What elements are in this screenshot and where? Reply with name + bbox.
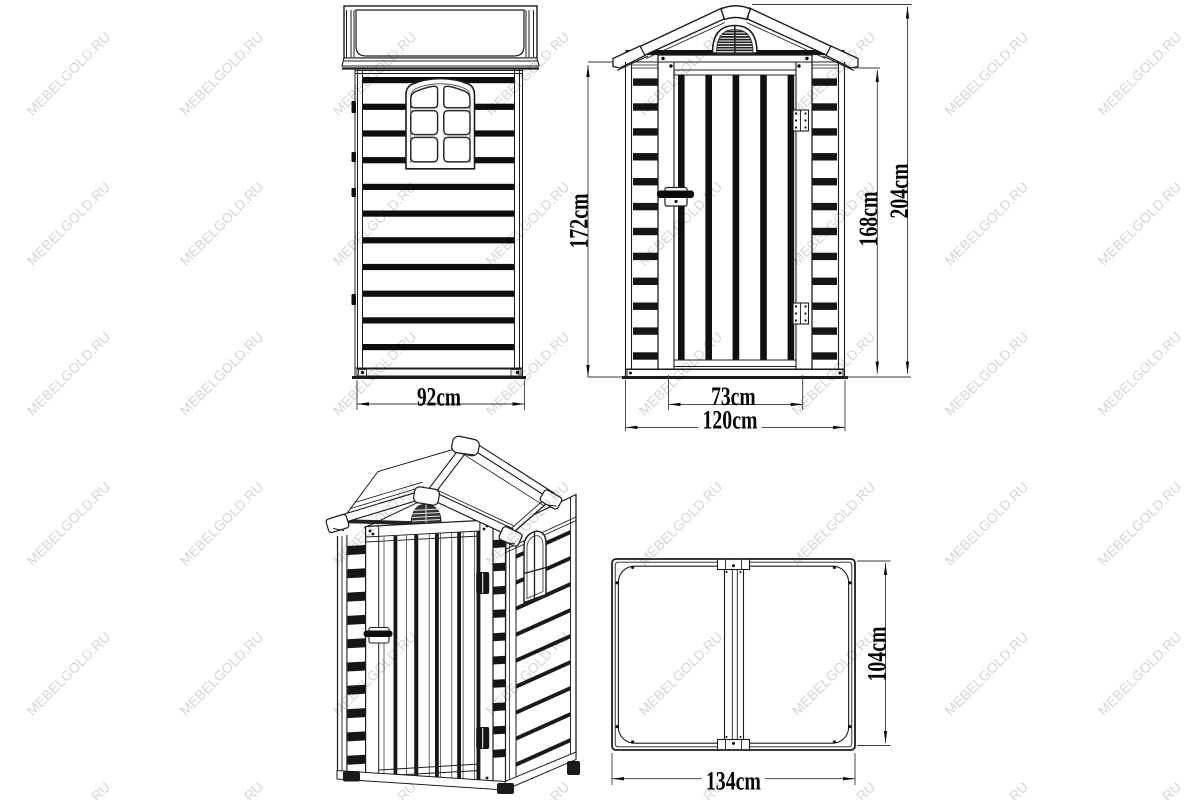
svg-text:MEBELGOLD.RU: MEBELGOLD.RU [788, 778, 878, 800]
svg-text:MEBELGOLD.RU: MEBELGOLD.RU [1094, 328, 1184, 418]
svg-text:MEBELGOLD.RU: MEBELGOLD.RU [176, 178, 266, 268]
svg-text:MEBELGOLD.RU: MEBELGOLD.RU [941, 778, 1031, 800]
svg-text:MEBELGOLD.RU: MEBELGOLD.RU [176, 478, 266, 568]
svg-text:MEBELGOLD.RU: MEBELGOLD.RU [176, 328, 266, 418]
svg-text:MEBELGOLD.RU: MEBELGOLD.RU [176, 778, 266, 800]
svg-text:MEBELGOLD.RU: MEBELGOLD.RU [941, 28, 1031, 118]
svg-text:MEBELGOLD.RU: MEBELGOLD.RU [941, 178, 1031, 268]
svg-text:MEBELGOLD.RU: MEBELGOLD.RU [176, 28, 266, 118]
svg-text:MEBELGOLD.RU: MEBELGOLD.RU [23, 628, 113, 718]
svg-text:MEBELGOLD.RU: MEBELGOLD.RU [329, 178, 419, 268]
svg-text:MEBELGOLD.RU: MEBELGOLD.RU [1094, 778, 1184, 800]
svg-text:MEBELGOLD.RU: MEBELGOLD.RU [482, 178, 572, 268]
svg-text:120cm: 120cm [703, 405, 758, 434]
svg-text:MEBELGOLD.RU: MEBELGOLD.RU [1094, 178, 1184, 268]
svg-text:MEBELGOLD.RU: MEBELGOLD.RU [788, 478, 878, 568]
svg-text:MEBELGOLD.RU: MEBELGOLD.RU [176, 628, 266, 718]
svg-text:MEBELGOLD.RU: MEBELGOLD.RU [635, 778, 725, 800]
svg-text:MEBELGOLD.RU: MEBELGOLD.RU [635, 478, 725, 568]
svg-text:MEBELGOLD.RU: MEBELGOLD.RU [941, 328, 1031, 418]
svg-text:172cm: 172cm [564, 193, 593, 248]
svg-text:MEBELGOLD.RU: MEBELGOLD.RU [1094, 28, 1184, 118]
svg-text:MEBELGOLD.RU: MEBELGOLD.RU [941, 628, 1031, 718]
svg-text:MEBELGOLD.RU: MEBELGOLD.RU [23, 778, 113, 800]
svg-text:92cm: 92cm [417, 382, 461, 411]
svg-text:MEBELGOLD.RU: MEBELGOLD.RU [23, 478, 113, 568]
svg-text:MEBELGOLD.RU: MEBELGOLD.RU [941, 478, 1031, 568]
svg-text:MEBELGOLD.RU: MEBELGOLD.RU [1094, 478, 1184, 568]
svg-text:204cm: 204cm [885, 163, 914, 218]
svg-text:MEBELGOLD.RU: MEBELGOLD.RU [1094, 628, 1184, 718]
svg-text:MEBELGOLD.RU: MEBELGOLD.RU [23, 178, 113, 268]
svg-text:MEBELGOLD.RU: MEBELGOLD.RU [23, 28, 113, 118]
svg-text:MEBELGOLD.RU: MEBELGOLD.RU [23, 328, 113, 418]
